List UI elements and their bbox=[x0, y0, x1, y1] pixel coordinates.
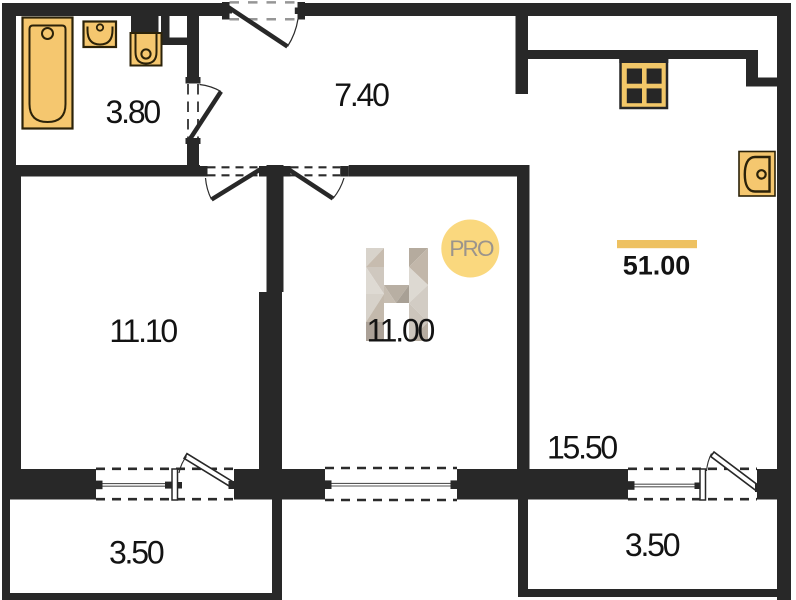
svg-text:15.50: 15.50 bbox=[547, 430, 617, 466]
svg-text:PRO: PRO bbox=[449, 236, 494, 261]
svg-text:3.50: 3.50 bbox=[109, 535, 164, 571]
svg-text:3.50: 3.50 bbox=[625, 527, 680, 563]
svg-text:51.00: 51.00 bbox=[623, 251, 691, 281]
svg-text:11.00: 11.00 bbox=[366, 313, 434, 349]
svg-text:3.80: 3.80 bbox=[106, 94, 161, 130]
svg-text:11.10: 11.10 bbox=[109, 313, 177, 349]
svg-text:7.40: 7.40 bbox=[334, 77, 389, 113]
